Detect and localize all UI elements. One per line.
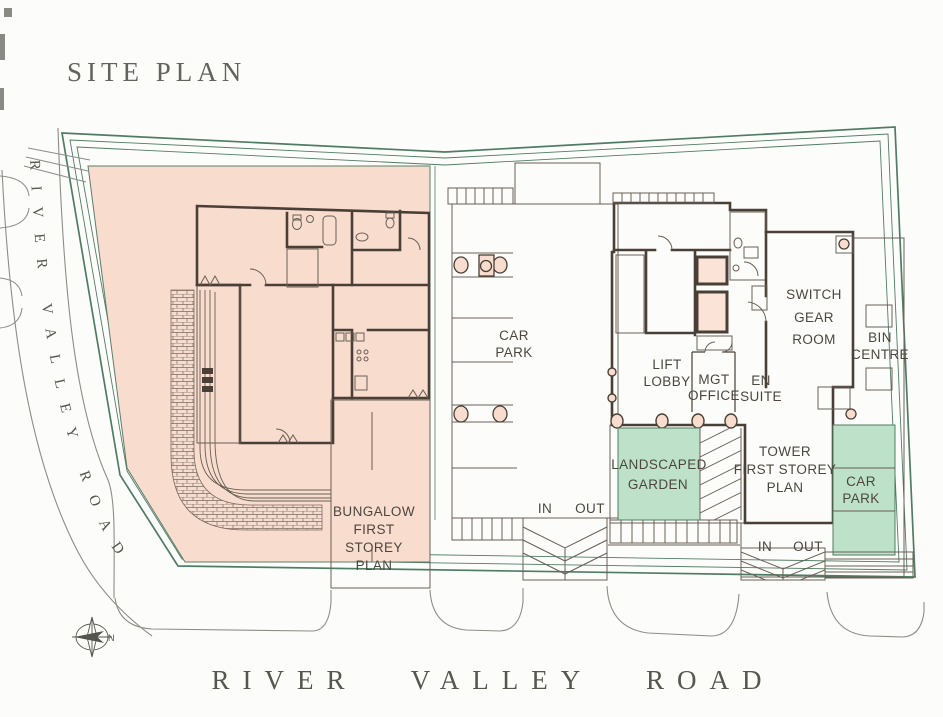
driveway-east-in-label: IN	[758, 539, 772, 554]
bin-centre-label: CENTRE	[851, 347, 909, 362]
bungalow-plan-label: PLAN	[356, 558, 393, 573]
car-park-east-label: CAR	[846, 474, 876, 489]
driveway-central-in-label: IN	[538, 501, 552, 516]
column	[846, 409, 856, 419]
lift-shaft	[697, 292, 727, 332]
tower-plan-label: FIRST STOREY	[734, 462, 837, 477]
site-plan-page: N SITE PLAN RIVER VALLEY ROAD RIVER VALL…	[0, 0, 943, 717]
page-title: SITE PLAN	[67, 57, 246, 87]
bottom-road-label: RIVER VALLEY ROAD	[211, 665, 774, 695]
bungalow-plan-label: STOREY	[345, 540, 403, 555]
landscaped-garden-label: LANDSCAPED	[611, 457, 707, 472]
tower-plan-label: TOWER	[759, 444, 811, 459]
mgt-office-label: OFFICE	[688, 388, 740, 403]
driveway-east-out-label: OUT	[793, 539, 823, 554]
lift-shaft	[697, 257, 727, 284]
car-park-east-label: PARK	[842, 491, 879, 506]
compass-north-label: N	[108, 633, 115, 643]
driveway-central-out-label: OUT	[575, 501, 605, 516]
tower-plan-label: PLAN	[767, 480, 804, 495]
landscaped-garden-label: GARDEN	[628, 477, 688, 492]
bungalow-plan-label: BUNGALOW	[333, 504, 415, 519]
en-suite-label: EN	[751, 373, 771, 388]
lift-lobby-label: LIFT	[652, 357, 681, 372]
car-park-central-label: PARK	[495, 345, 532, 360]
switch-gear-room-label: ROOM	[792, 332, 836, 347]
switch-gear-room-label: SWITCH	[786, 287, 842, 302]
mgt-office-label: MGT	[698, 372, 729, 387]
en-suite-label: SUITE	[740, 389, 782, 404]
bungalow-plan-label: FIRST	[354, 522, 395, 537]
car-park-central-label: CAR	[499, 328, 529, 343]
east-car-park	[833, 425, 895, 555]
lift-lobby-label: LOBBY	[643, 374, 690, 389]
landscaped-garden-area	[618, 428, 700, 520]
bin-centre-label: BIN	[868, 330, 892, 345]
switch-gear-room-label: GEAR	[794, 310, 834, 325]
